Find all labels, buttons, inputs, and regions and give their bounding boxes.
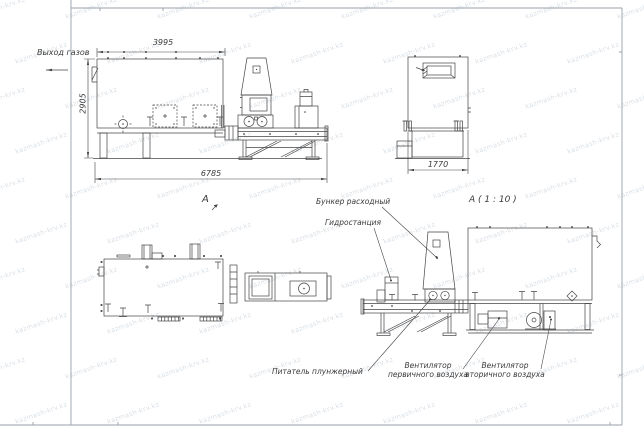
dim-3995: 3995 bbox=[148, 38, 178, 47]
plunger-feeder-tower bbox=[295, 90, 318, 129]
plunger-feeder-label: Питатель плунжерный bbox=[272, 367, 363, 376]
view-side-left bbox=[46, 48, 328, 210]
detail-view-title: А ( 1 : 10 ) bbox=[469, 195, 517, 205]
leader-lines bbox=[368, 207, 552, 371]
detail-side-bracket bbox=[592, 236, 601, 248]
feed-hopper-label: Бункер расходный bbox=[316, 197, 390, 206]
front-columns bbox=[403, 121, 465, 131]
primary-air-fan-label-line1: Вентилятор bbox=[386, 361, 470, 370]
view-detail-a bbox=[361, 226, 601, 335]
secondary-air-fan-label: Вентилятор вторичного воздуха bbox=[463, 361, 547, 379]
technical-drawing-sheet: kazmash-krv.kzkazmash-krv.kzkazmash-krv.… bbox=[0, 0, 644, 430]
plan-body-outline bbox=[104, 259, 223, 316]
plan-ladder-strips bbox=[158, 317, 222, 321]
primary-air-fan-label-line2: первичного воздуха bbox=[386, 370, 470, 379]
dim-6785: 6785 bbox=[196, 169, 226, 178]
hatch-center-marks bbox=[163, 114, 207, 118]
front-base-frame bbox=[395, 131, 470, 159]
plan-anchor-marks bbox=[105, 262, 224, 317]
plan-chimney-footprints bbox=[117, 244, 200, 259]
primary-air-fan-label: Вентилятор первичного воздуха bbox=[386, 361, 470, 379]
hatch-openings bbox=[153, 105, 217, 127]
gas-outlet-label: Выход газов bbox=[37, 48, 89, 57]
detail-hopper-chimney bbox=[423, 232, 455, 302]
feed-hopper-chimney bbox=[238, 58, 273, 128]
primary-air-fan bbox=[478, 311, 507, 328]
feed-conveyor bbox=[215, 126, 328, 160]
dim-1770: 1770 bbox=[423, 160, 453, 169]
front-side-ticks bbox=[468, 108, 471, 112]
plan-flange-joint bbox=[230, 265, 237, 303]
leader-hydraulic-station bbox=[374, 228, 391, 280]
detail-furnace-outline bbox=[468, 228, 592, 300]
plan-feeder-body bbox=[245, 271, 331, 301]
secondary-air-fan-label-line2: вторичного воздуха bbox=[463, 370, 547, 379]
dim-2905: 2905 bbox=[79, 87, 88, 121]
plan-bolts bbox=[101, 255, 222, 319]
hydraulic-station-box bbox=[377, 277, 398, 302]
detail-top-bolts bbox=[476, 226, 589, 228]
secondary-air-fan-label-line1: Вентилятор bbox=[463, 361, 547, 370]
plan-left-flange bbox=[97, 267, 104, 276]
front-top-window bbox=[416, 63, 455, 78]
gas-outlet-arrow bbox=[46, 69, 68, 72]
furnace-top-bolts bbox=[107, 57, 219, 59]
view-front bbox=[395, 55, 471, 174]
detail-jack-screws bbox=[472, 292, 537, 301]
detail-diamond-port bbox=[567, 291, 577, 301]
furnace-body-outline bbox=[97, 59, 223, 128]
hydraulic-station-label: Гидростанция bbox=[325, 218, 381, 227]
dim-3995-lines bbox=[97, 48, 225, 57]
view-a-arrow bbox=[212, 204, 218, 210]
secondary-air-fan bbox=[525, 311, 556, 330]
view-plan bbox=[97, 244, 331, 321]
drawing-linework bbox=[0, 0, 644, 430]
view-a-marker: А bbox=[202, 194, 209, 205]
jack-screws bbox=[147, 117, 223, 126]
valve-flange bbox=[115, 116, 132, 133]
detail-base-frame bbox=[466, 304, 594, 334]
